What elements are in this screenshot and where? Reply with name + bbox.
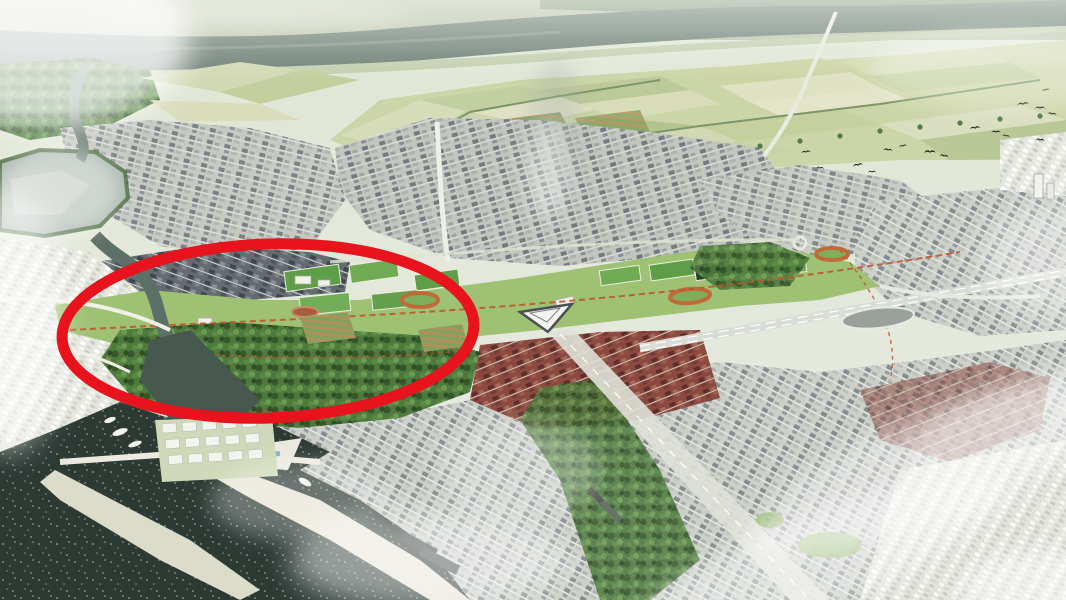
park-building	[295, 276, 311, 284]
tower-building	[1047, 183, 1054, 199]
fog-bottom-center	[210, 460, 390, 540]
athletics-track	[816, 248, 848, 260]
district-far-right	[1000, 132, 1066, 196]
athletics-track	[292, 307, 318, 317]
park-building	[318, 280, 330, 286]
haze-city	[440, 420, 600, 520]
smoke-plume	[528, 120, 568, 220]
haze-left-town	[0, 145, 120, 235]
athletics-track	[402, 293, 438, 307]
tower-building	[1034, 174, 1043, 198]
aerial-city-rendering	[0, 0, 1066, 600]
scene-canvas	[0, 0, 1066, 600]
